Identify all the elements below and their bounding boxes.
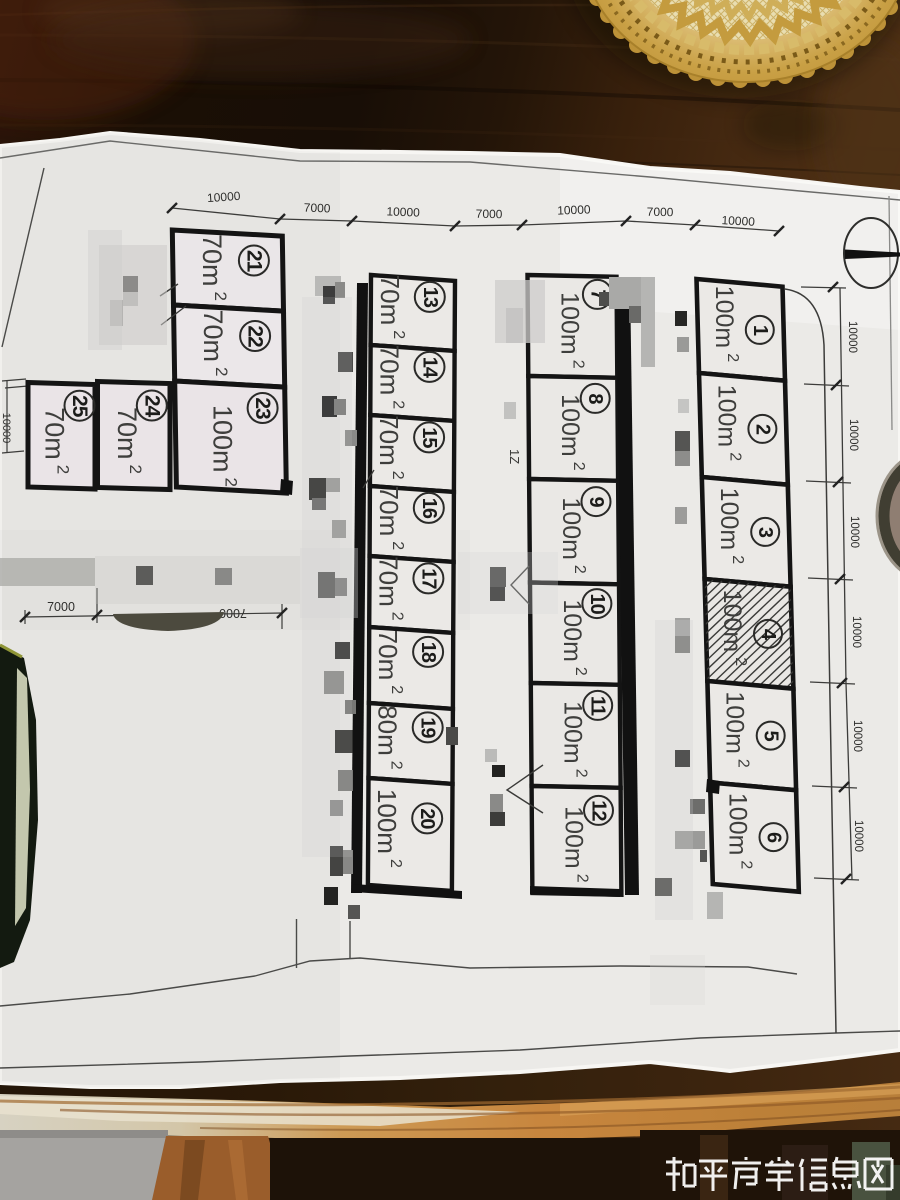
- svg-text:19: 19: [417, 717, 439, 738]
- svg-text:16: 16: [418, 498, 440, 519]
- svg-text:9: 9: [585, 497, 607, 508]
- svg-text:10000: 10000: [852, 820, 864, 852]
- svg-text:7000: 7000: [476, 207, 503, 221]
- svg-text:13: 13: [419, 287, 441, 308]
- svg-text:22: 22: [244, 325, 267, 347]
- svg-text:17: 17: [417, 568, 439, 589]
- svg-text:20: 20: [416, 808, 438, 829]
- svg-text:10000: 10000: [721, 213, 755, 229]
- svg-text:7000: 7000: [47, 600, 75, 614]
- svg-text:7000: 7000: [304, 201, 331, 216]
- svg-text:10000: 10000: [386, 204, 420, 219]
- svg-text:2: 2: [751, 424, 773, 435]
- svg-text:1: 1: [749, 325, 771, 336]
- svg-text:10000: 10000: [207, 189, 242, 205]
- svg-text:11: 11: [587, 696, 609, 716]
- svg-text:5: 5: [760, 731, 782, 742]
- svg-text:10000: 10000: [0, 413, 12, 444]
- svg-text:14: 14: [419, 357, 441, 379]
- svg-text:21: 21: [242, 250, 265, 273]
- svg-text:10: 10: [586, 593, 608, 614]
- svg-text:3: 3: [754, 527, 776, 538]
- svg-text:15: 15: [418, 427, 440, 448]
- svg-text:10000: 10000: [847, 419, 859, 451]
- svg-text:10000: 10000: [850, 616, 862, 648]
- svg-text:6: 6: [763, 832, 785, 843]
- svg-text:25: 25: [68, 395, 91, 418]
- svg-text:10000: 10000: [557, 202, 591, 217]
- svg-text:12: 12: [588, 800, 610, 821]
- svg-text:10000: 10000: [846, 321, 858, 353]
- svg-text:10000: 10000: [848, 516, 860, 548]
- svg-text:1Z: 1Z: [507, 449, 522, 464]
- svg-text:23: 23: [251, 397, 274, 419]
- svg-text:7000: 7000: [647, 205, 674, 219]
- svg-text:24: 24: [140, 395, 163, 418]
- svg-text:10000: 10000: [851, 720, 863, 752]
- svg-text:18: 18: [417, 642, 439, 663]
- svg-text:8: 8: [584, 393, 606, 404]
